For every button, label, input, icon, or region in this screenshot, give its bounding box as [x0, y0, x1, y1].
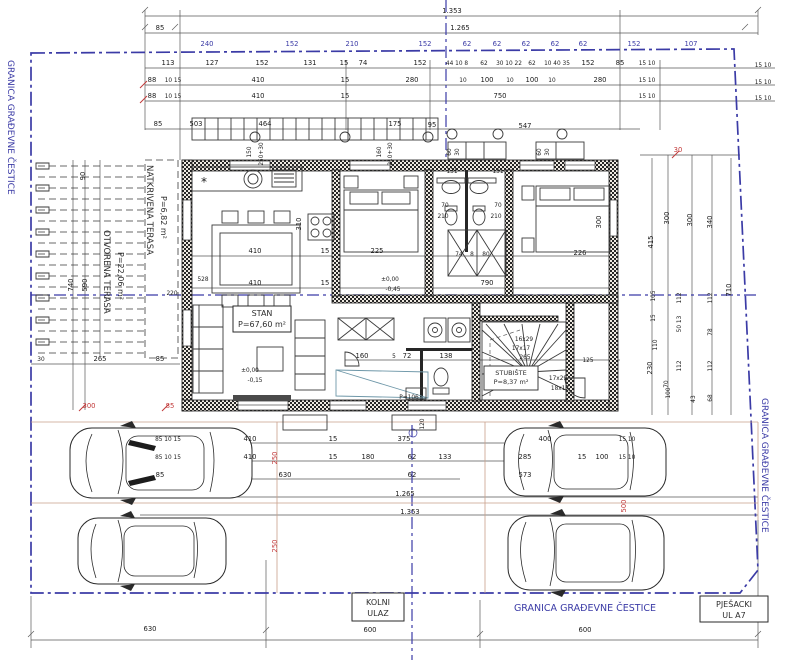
dimension-label: 60	[447, 148, 453, 156]
dimension-label: 15 10	[619, 455, 636, 461]
dimension-label: 74	[455, 252, 463, 258]
dimension-label: 15	[321, 247, 330, 255]
site-plan-svg: 1.353851.2652401522101526262626262152107…	[0, 0, 800, 664]
dimension-label: 600	[579, 626, 592, 634]
dimension-label: 285	[519, 453, 532, 461]
dimension-label: 10 15	[165, 78, 182, 84]
sink-icon	[470, 181, 488, 194]
dimension-label: 15 10	[755, 80, 772, 86]
dimension-label: 62	[408, 453, 417, 461]
dimension-label: 630	[144, 625, 157, 633]
dimension-label: 138	[440, 352, 453, 360]
dimension-label: P=106	[399, 395, 419, 401]
dimension-label: 300	[595, 216, 603, 229]
dimension-label: 150	[247, 146, 253, 157]
car-4	[508, 509, 664, 597]
dimension-label: 300	[663, 212, 671, 225]
dimension-label: 210+30	[388, 142, 394, 166]
dimension-label: 15	[341, 76, 350, 84]
dimension-label: 85	[156, 471, 165, 479]
tv-bench	[233, 395, 291, 401]
apartment-area: P=67,60 m²	[238, 320, 286, 329]
dimension-label: 10 40 35	[544, 61, 570, 67]
dimension-label: 15 10	[755, 63, 772, 69]
dimension-label: 30	[455, 148, 461, 156]
dimension-label: 160	[356, 352, 369, 360]
dimension-label: 160	[377, 146, 383, 157]
dimension-label: 630	[279, 471, 292, 479]
dimension-label: 125	[582, 358, 593, 364]
dimension-label: 78	[708, 328, 714, 336]
dimension-label: 375	[398, 435, 411, 443]
dimension-label: 62	[528, 61, 536, 67]
dimension-label: 112	[677, 292, 683, 303]
pedestrian-entrance-line2: UL A7	[722, 611, 745, 620]
dimension-label: 410	[244, 453, 257, 461]
dimension-label: 152	[286, 40, 299, 48]
dimension-label: 74	[359, 59, 368, 67]
dimension-label: ±0,00	[241, 368, 259, 374]
dimension-label: 410	[249, 247, 262, 255]
pedestrian-entrance-line1: PJEŠACKI	[716, 598, 752, 609]
driveway-entrance-line2: ULAZ	[367, 609, 389, 618]
covered-terrace-label: NATKRIVENA TERASA	[144, 165, 154, 255]
dimension-label: 112	[677, 360, 683, 371]
dimension-label: 30	[545, 148, 551, 156]
dimension-label: 280	[406, 76, 419, 84]
dimension-label: 112	[708, 292, 714, 303]
dimension-label: 5	[392, 354, 396, 360]
dimension-label: 80	[482, 252, 490, 258]
bed-1	[344, 190, 418, 252]
dimension-label: 750	[494, 92, 507, 100]
dimension-label: 152	[419, 40, 432, 48]
sink-icon	[442, 181, 460, 194]
dimension-label: 1.265	[395, 490, 414, 498]
dimension-label: 528	[197, 277, 208, 283]
dimension-label: 43	[691, 395, 697, 403]
dimension-label: 15	[329, 453, 338, 461]
apartment-name: STAN	[252, 309, 273, 318]
cabinet	[295, 320, 325, 390]
dimension-label: 590	[81, 279, 89, 292]
dimension-label: 250	[271, 452, 279, 465]
dimension-label: 240	[201, 40, 214, 48]
dimension-label: 410	[252, 92, 265, 100]
dimension-label: 62	[493, 40, 502, 48]
left-boundary-label: GRANICA GRAĐEVNE ČESTICE	[5, 60, 17, 195]
car-2	[78, 511, 226, 591]
dimension-label: 180	[362, 453, 375, 461]
washing-machine-icon	[424, 318, 446, 342]
stairs-area: P=8,37 m²	[494, 378, 529, 386]
dimension-label: 1.265	[450, 24, 469, 32]
dimension-label: 16x29	[515, 337, 533, 343]
dimension-label: 100	[666, 387, 672, 398]
floor-plan-drawing: 1.353851.2652401522101526262626262152107…	[0, 0, 800, 664]
dimension-label: 15	[329, 435, 338, 443]
dimension-label: 210	[437, 214, 448, 220]
dimension-label: 127	[206, 59, 219, 67]
dimension-label: 500	[620, 500, 628, 513]
dimension-label: 225	[371, 247, 384, 255]
coffee-table	[257, 347, 283, 371]
washing-machine-icon	[448, 318, 470, 342]
utility	[406, 318, 470, 399]
dimension-label: 18x17	[551, 386, 569, 392]
dimension-label: 175	[389, 120, 402, 128]
dimension-label: 15 10	[639, 94, 656, 100]
open-terrace-area: P=22,06 m²	[116, 252, 125, 300]
dimension-label: 15 10	[619, 437, 636, 443]
dimension-label: 10	[459, 78, 467, 84]
dimension-label: 62	[579, 40, 588, 48]
driveway-entrance-line1: KOLNI	[366, 598, 390, 607]
kitchen-dining	[192, 167, 334, 307]
dimension-label: 15	[321, 279, 330, 287]
dimension-label: 10	[506, 78, 514, 84]
dimension-label: 280	[594, 76, 607, 84]
bottom-boundary-label: GRANICA GRAĐEVNE ČESTICE	[514, 602, 656, 614]
dimension-label: 90	[79, 172, 87, 181]
dimension-label: 100	[481, 76, 494, 84]
dimension-label: 152	[628, 40, 641, 48]
car-1	[70, 421, 252, 505]
dimension-label: 70	[664, 380, 670, 388]
dimension-label: 131	[492, 169, 503, 175]
dimension-label: 265	[519, 355, 530, 361]
dimension-label: 8	[470, 252, 474, 258]
dimension-label: 70	[494, 203, 502, 209]
dimension-label: 62	[463, 40, 472, 48]
dimension-label: 230	[646, 362, 654, 375]
dimension-label: 250+30	[259, 142, 265, 166]
dimension-label: -0,15	[248, 378, 263, 384]
dimension-label: 85	[154, 120, 163, 128]
toilet-icon	[434, 368, 448, 386]
dimension-label: 1.353	[400, 508, 419, 516]
dimension-label: 15 10	[755, 96, 772, 102]
dimension-label: 30 10 22	[496, 61, 522, 67]
dimension-label: 710	[725, 284, 733, 297]
dimension-label: 15	[578, 453, 587, 461]
open-terrace-label: OTVORENA TERASA	[101, 230, 111, 314]
dimension-label: 85	[156, 24, 165, 32]
kitchen-sink-icon	[244, 170, 262, 188]
dimension-label: 131	[446, 169, 457, 175]
dimension-label: 547	[519, 122, 532, 130]
dimension-label: 120	[420, 418, 426, 429]
dimension-label: 15	[651, 314, 657, 322]
dimension-label: 15 10	[639, 78, 656, 84]
dimension-label: 15 10	[639, 61, 656, 67]
dimension-label: 112	[708, 360, 714, 371]
dimension-label: 17x17	[512, 346, 530, 352]
dimension-label: 70	[441, 203, 449, 209]
car-3	[504, 421, 666, 503]
dimension-label: 464	[259, 120, 272, 128]
bathrooms	[437, 178, 506, 276]
dimension-label: 503	[190, 120, 203, 128]
dimension-label: 410	[249, 279, 262, 287]
dimension-label: 60	[537, 148, 543, 156]
dimension-label: 600	[364, 626, 377, 634]
dimension-label: 85 10 15	[155, 437, 181, 443]
dimension-label: 220	[166, 291, 177, 297]
dimension-label: 113	[162, 59, 175, 67]
dimension-label: 131	[304, 59, 317, 67]
dimension-label: 62	[408, 471, 417, 479]
dimension-label: 62	[480, 61, 488, 67]
dimension-label: 95	[428, 121, 437, 129]
dimension-label: 310	[295, 218, 303, 231]
dimension-label: 15	[340, 59, 349, 67]
dimension-label: 400	[539, 435, 552, 443]
dimension-label: 210	[346, 40, 359, 48]
right-boundary-label: GRANICA GRAĐEVNE ČESTICE	[759, 398, 771, 533]
dimension-label: 88	[148, 76, 157, 84]
dimension-label: 100	[596, 453, 609, 461]
dimension-label: 50 13	[677, 315, 683, 332]
dimension-label: 133	[439, 453, 452, 461]
dimension-label: 10	[548, 78, 556, 84]
dimension-label: 85	[616, 59, 625, 67]
dimension-label: 250	[271, 540, 279, 553]
dimension-label: 226	[574, 249, 587, 257]
plot-boundary	[31, 49, 758, 593]
dimension-label: 62	[551, 40, 560, 48]
dimension-label: 410	[252, 76, 265, 84]
dimension-label: 88	[148, 92, 157, 100]
covered-terrace-area: P=6,82 m²	[159, 196, 168, 239]
dimension-label: 68	[708, 394, 714, 402]
bedroom-1	[344, 176, 418, 252]
dimension-label: ±0,00	[381, 277, 399, 283]
dimension-label: 85 10 15	[155, 455, 181, 461]
dimension-label: 152	[582, 59, 595, 67]
dimension-label: 1.353	[442, 7, 461, 15]
dimension-label: 415	[647, 236, 655, 249]
dimension-label: 300	[686, 214, 694, 227]
dimension-label: 85	[156, 355, 165, 363]
cars	[70, 421, 666, 597]
stairs-name: STUBIŠTE	[495, 368, 526, 377]
dimension-label: -0,45	[386, 287, 401, 293]
dimension-label: 30	[37, 357, 45, 363]
dimension-label: 210	[490, 214, 501, 220]
dimension-label: 410	[244, 435, 257, 443]
dimension-label: 105	[651, 290, 657, 301]
dimension-label: 100	[526, 76, 539, 84]
dimension-label: 110	[653, 339, 659, 350]
dimension-label: 30	[674, 146, 683, 154]
dimension-label: 265	[94, 355, 107, 363]
dimension-label: 17x29	[549, 376, 567, 382]
dimension-label: 107	[685, 40, 698, 48]
dimension-label: 72	[403, 352, 412, 360]
dimension-label: 44 10 8	[446, 61, 468, 67]
dimension-label: 340	[706, 216, 714, 229]
dimension-label: 15	[341, 92, 350, 100]
dimension-label: 152	[414, 59, 427, 67]
dimension-label: 740	[67, 279, 75, 292]
dimension-label: 152	[256, 59, 269, 67]
dimension-label: 10 15	[165, 94, 182, 100]
dimension-label: 62	[522, 40, 531, 48]
dimension-label: *	[201, 175, 207, 189]
dimension-label: 573	[519, 471, 532, 479]
dimension-label: 790	[481, 279, 494, 287]
